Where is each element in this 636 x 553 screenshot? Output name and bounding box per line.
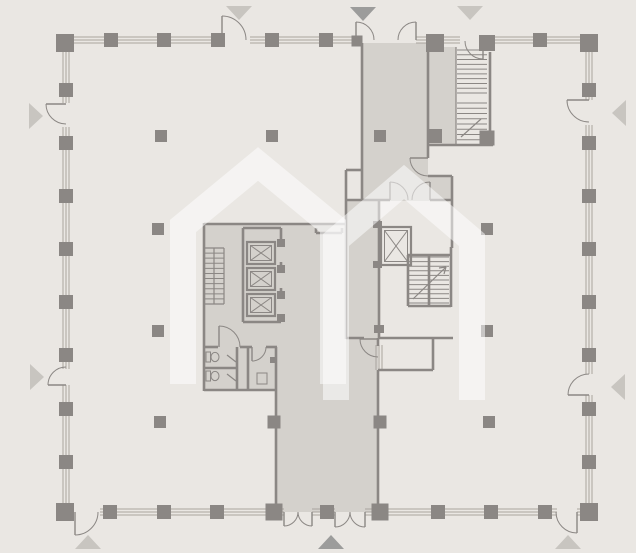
floor-plan-canvas [0,0,636,553]
structural-column [155,130,167,142]
structural-column [580,503,598,521]
wall-stub [277,291,285,299]
structural-column [268,416,281,429]
structural-column [582,402,596,416]
structural-column [266,130,278,142]
structural-column [538,505,552,519]
structural-column [59,348,73,362]
structural-column [59,455,73,469]
structural-column [582,83,596,97]
structural-column [59,402,73,416]
structural-column [319,33,333,47]
wall-stub [373,261,382,268]
structural-column [582,242,596,256]
structural-column [56,503,74,521]
structural-column [582,295,596,309]
structural-column [56,34,74,52]
structural-column [210,505,224,519]
structural-column [157,33,171,47]
structural-column [374,130,386,142]
structural-column [428,129,442,143]
wall-stub [277,239,285,247]
structural-column [104,33,118,47]
structural-column [265,33,279,47]
structural-column [211,33,225,47]
structural-column [374,416,387,429]
structural-column [320,505,334,519]
structural-column [483,416,495,428]
structural-column [533,33,547,47]
structural-column [426,34,444,52]
structural-column [152,223,164,235]
structural-column [431,505,445,519]
wall-stub [374,325,384,333]
structural-column [152,325,164,337]
wall-stub [277,265,285,273]
structural-column [157,505,171,519]
structural-column [59,83,73,97]
structural-column [372,504,389,521]
wall-stub [277,314,285,322]
structural-column [582,455,596,469]
structural-column [582,189,596,203]
wall-stub [270,357,276,363]
structural-column [103,505,117,519]
structural-column [480,131,495,146]
structural-column [59,189,73,203]
structural-column [59,136,73,150]
structural-column [59,295,73,309]
structural-column [59,242,73,256]
structural-column [154,416,166,428]
floor-plan-screenshot [0,0,636,553]
structural-column [484,505,498,519]
structural-column [580,34,598,52]
structural-column [582,136,596,150]
structural-column [352,36,363,47]
structural-column [479,35,495,51]
structural-column [582,348,596,362]
structural-column [266,504,283,521]
